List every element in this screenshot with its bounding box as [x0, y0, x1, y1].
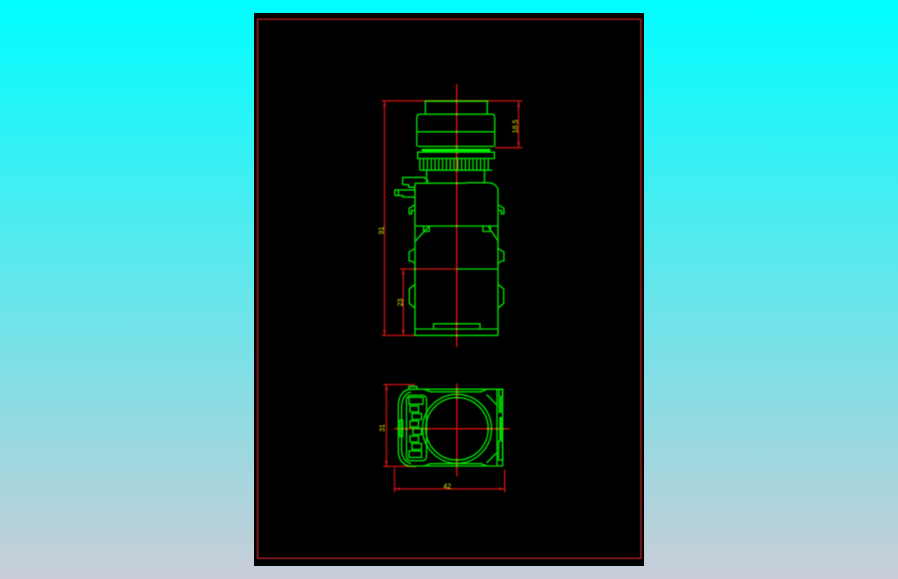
svg-text:23: 23 [397, 298, 404, 306]
svg-text:31: 31 [380, 424, 387, 432]
svg-text:42: 42 [443, 484, 451, 491]
svg-text:91: 91 [379, 227, 386, 235]
svg-text:18.5: 18.5 [512, 119, 519, 133]
